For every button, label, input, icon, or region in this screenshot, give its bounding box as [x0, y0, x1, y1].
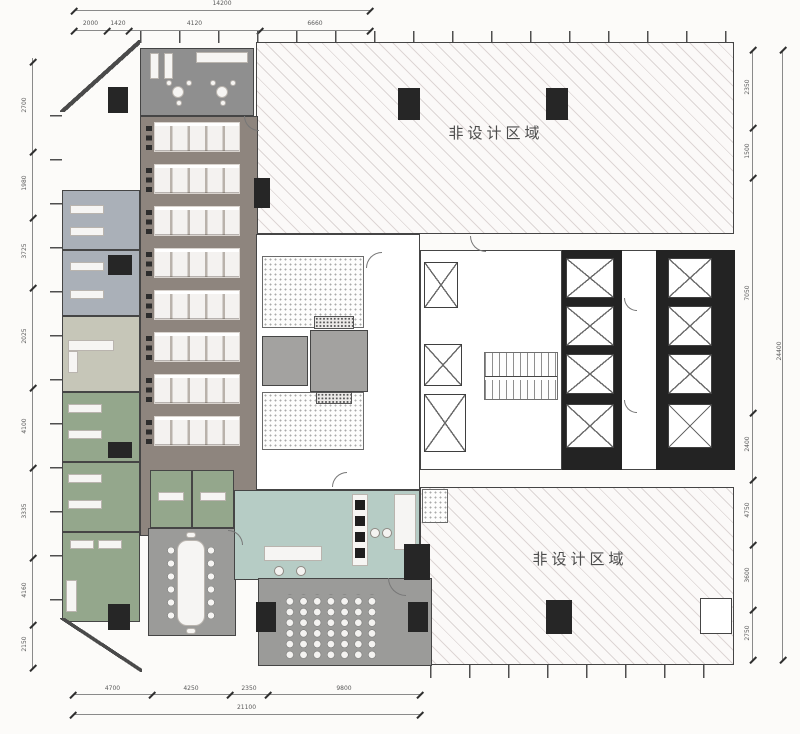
washbasin-counter: [314, 316, 354, 329]
dim-top-seg: 2000: [74, 21, 107, 27]
dim-right-seg: 1500: [745, 134, 751, 168]
dim-left-seg: 4100: [22, 409, 28, 443]
dim-line: [73, 714, 420, 715]
column: [256, 602, 276, 632]
chair: [186, 628, 196, 634]
dim-top-total: 14200: [74, 1, 370, 7]
column: [546, 88, 568, 120]
dim-left-seg: 3335: [22, 494, 28, 528]
chair: [230, 80, 236, 86]
desk: [98, 540, 122, 549]
chair: [186, 80, 192, 86]
bench: [164, 53, 173, 79]
column: [398, 88, 420, 120]
dim-left-seg: 2150: [22, 627, 28, 661]
desk-row: [154, 416, 240, 446]
dim-right-seg: 2400: [745, 427, 751, 461]
dim-bottom-seg: 9800: [268, 686, 420, 692]
dim-line: [74, 10, 370, 11]
round-table: [216, 86, 228, 98]
elevator: [668, 404, 712, 448]
elevator: [668, 306, 712, 346]
elevator: [566, 306, 614, 346]
appliance: [355, 500, 365, 510]
elevator: [566, 354, 614, 394]
conference-chairs: [166, 544, 176, 624]
conference-table: [177, 540, 205, 626]
bench: [150, 53, 159, 79]
dim-line: [73, 694, 420, 695]
service-elevator: [424, 344, 462, 386]
dim-bottom-seg: 4250: [152, 686, 230, 692]
desk: [70, 290, 104, 299]
curtain-wall-mullions-left: [50, 115, 62, 620]
desk: [158, 492, 184, 501]
desk-row: [154, 290, 240, 320]
service-room: [262, 336, 308, 386]
dim-line: [752, 50, 753, 660]
dim-right-total: 24400: [777, 331, 783, 371]
chair: [210, 80, 216, 86]
column: [404, 544, 430, 580]
service-elevator: [424, 262, 458, 308]
desk: [68, 500, 102, 509]
conference-chairs: [206, 544, 216, 624]
dim-right-seg: 4750: [745, 493, 751, 527]
dim-left-seg: 2700: [22, 88, 28, 122]
dim-right-seg: 3600: [745, 558, 751, 592]
bar-table: [264, 546, 322, 561]
desk: [70, 262, 104, 271]
dim-left-seg: 2025: [22, 319, 28, 353]
fridge-cabinet: [394, 494, 416, 550]
dim-right-seg: 7050: [745, 276, 751, 310]
non-design-area-lower: [420, 487, 734, 665]
desk: [68, 404, 102, 413]
column: [108, 255, 132, 275]
chamfer-corner-bottomleft: [60, 618, 142, 672]
desk: [70, 540, 94, 549]
dim-top-seg: 1420: [107, 21, 129, 27]
cabinet: [66, 580, 77, 612]
dim-top-seg: 4120: [129, 21, 260, 27]
elevator: [668, 258, 712, 298]
reception-counter: [196, 52, 248, 63]
dim-bottom-total: 21100: [73, 705, 420, 711]
elevator-lobby: [622, 250, 656, 470]
chamfer-corner-topleft: [60, 40, 140, 112]
office-room: [62, 190, 140, 250]
stairs: [484, 352, 558, 400]
dim-right-seg: 2750: [745, 616, 751, 650]
dim-right-seg: 2350: [745, 70, 751, 104]
dim-bottom-seg: 4700: [73, 686, 152, 692]
service-room: [310, 330, 368, 392]
dim-left-seg: 4160: [22, 573, 28, 607]
storage-room: [422, 489, 448, 523]
non-design-area-upper-label: 非设计区域: [366, 122, 626, 143]
dim-bottom-seg: 2350: [230, 686, 268, 692]
service-box: [700, 598, 732, 634]
desk: [70, 205, 104, 214]
desk-return: [68, 351, 78, 373]
desk-row: [154, 248, 240, 278]
dim-left-seg: 1980: [22, 166, 28, 200]
desk: [68, 430, 102, 439]
washbasin-counter: [316, 392, 352, 404]
office-room: [62, 462, 140, 532]
appliance: [355, 548, 365, 558]
non-design-area-lower-label: 非设计区域: [500, 548, 660, 569]
chair: [220, 100, 226, 106]
desk-row: [154, 374, 240, 404]
training-chair-grid: [280, 594, 377, 659]
pantry-break-area: [234, 490, 420, 580]
dim-top-seg: 6660: [260, 21, 370, 27]
round-table: [172, 86, 184, 98]
elevator: [566, 404, 614, 448]
chair: [166, 80, 172, 86]
desk: [200, 492, 226, 501]
desk: [68, 474, 102, 483]
executive-desk: [68, 340, 114, 351]
stool: [382, 528, 392, 538]
curtain-wall-mullions-bottom: [430, 664, 732, 678]
dim-left-seg: 3725: [22, 234, 28, 268]
elevator: [668, 354, 712, 394]
stool: [370, 528, 380, 538]
column: [408, 602, 428, 632]
elevator: [566, 258, 614, 298]
desk: [70, 227, 104, 236]
desk-row: [154, 332, 240, 362]
column: [254, 178, 270, 208]
chair: [176, 100, 182, 106]
dim-line: [32, 58, 33, 670]
appliance: [355, 532, 365, 542]
floor-plan-canvas: 14200 2000 1420 4120 6660 4700 4250 2350…: [0, 0, 800, 734]
desk-row: [154, 164, 240, 194]
stool: [296, 566, 306, 576]
service-elevator: [424, 394, 466, 452]
desk-row: [154, 122, 240, 152]
column: [108, 442, 132, 458]
desk-row: [154, 206, 240, 236]
appliance: [355, 516, 365, 526]
stool: [274, 566, 284, 576]
column: [546, 600, 572, 634]
chair: [186, 532, 196, 538]
